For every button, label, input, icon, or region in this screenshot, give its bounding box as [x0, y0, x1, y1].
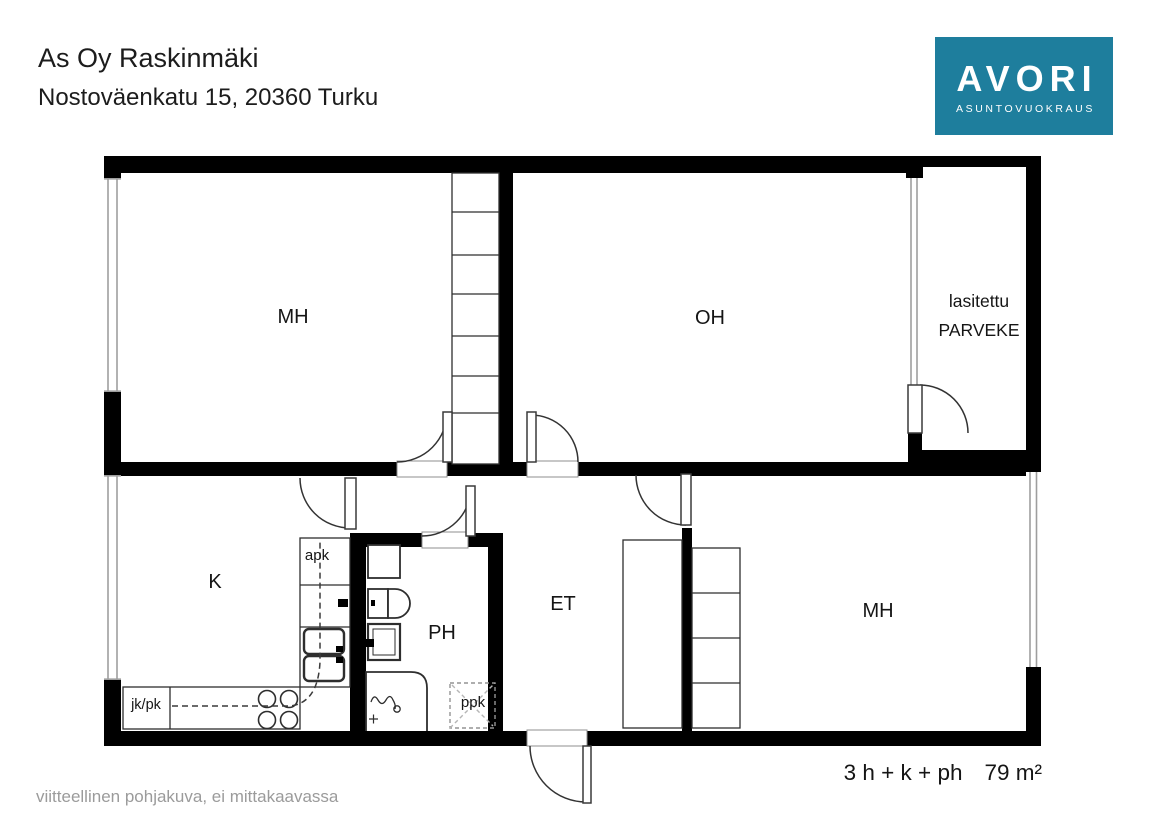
- bathroom-cabinet: [368, 545, 400, 578]
- disclaimer-text: viitteellinen pohjakuva, ei mittakaavass…: [36, 787, 338, 807]
- faucet-mark: [338, 599, 348, 607]
- walls: [104, 156, 1041, 746]
- room-label-balcony-line1: lasitettu: [949, 291, 1009, 311]
- room-label-balcony-line2: PARVEKE: [938, 320, 1019, 340]
- room-configuration: 3 h + k + ph: [844, 760, 963, 786]
- shower-area: [366, 672, 427, 731]
- counter-dashed-line: [172, 542, 320, 706]
- floorplan-drawing: MH OH lasitettu PARVEKE K PH ET MH apk j…: [0, 0, 1160, 820]
- room-label-kitchen: K: [208, 571, 222, 593]
- washbasin: [365, 624, 400, 660]
- apartment-spec: 3 h + k + ph 79 m²: [844, 760, 1042, 786]
- room-label-bedroom1: MH: [277, 306, 308, 328]
- fixture-label-dishwasher: apk: [305, 547, 330, 564]
- room-label-bathroom: PH: [428, 622, 456, 644]
- fixture-label-washer: ppk: [461, 694, 486, 711]
- room-label-bedroom2: MH: [862, 600, 893, 622]
- floorplan-page: As Oy Raskinmäki Nostoväenkatu 15, 20360…: [0, 0, 1160, 820]
- fixture-label-fridge: jk/pk: [130, 697, 162, 713]
- apartment-area: 79 m²: [984, 760, 1042, 786]
- toilet: [368, 589, 410, 618]
- room-label-living: OH: [695, 307, 725, 329]
- room-label-hall: ET: [550, 593, 576, 615]
- floor-drain: [369, 697, 400, 724]
